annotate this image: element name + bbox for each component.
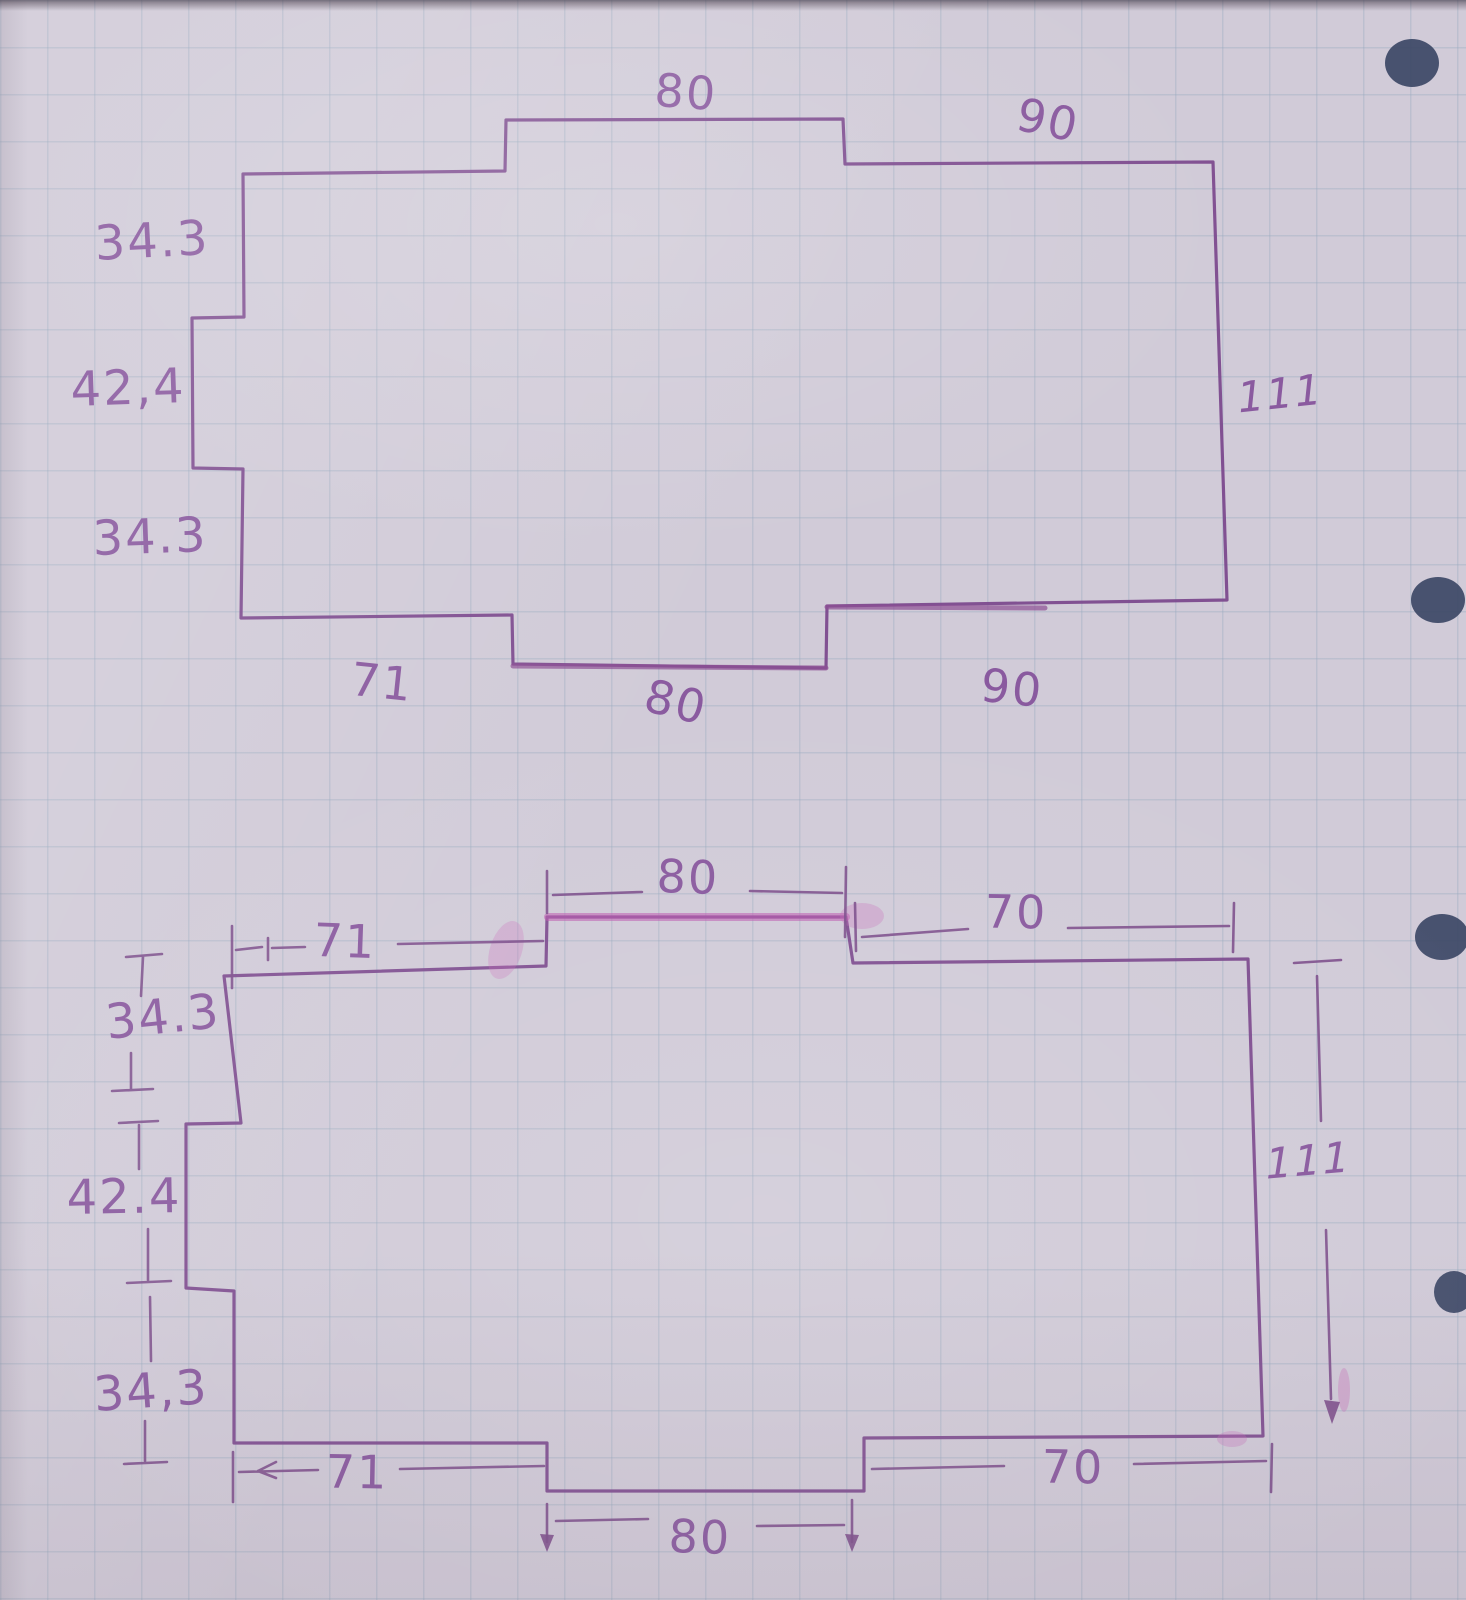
dim-label-bottom90: 90 (978, 662, 1045, 714)
dimension-lines (112, 867, 1341, 1542)
notebook-page: 80 90 34.3 42,4 34.3 71 80 90 111 80 71 … (0, 0, 1466, 1600)
dim-label-b-top71: 71 (313, 917, 377, 965)
dim-label-top80: 80 (653, 67, 719, 117)
hole-dot (1385, 39, 1439, 87)
dimension-arrowheads (540, 1400, 1340, 1552)
sketch-canvas (0, 0, 1466, 1600)
dim-label-b-top70: 70 (984, 888, 1047, 935)
dim-label-left-42: 42,4 (70, 362, 186, 414)
dim-label-b-bottom80: 80 (668, 1513, 732, 1561)
dim-label-b-top80: 80 (656, 853, 720, 901)
dim-label-b-left-34-lower: 34,3 (92, 1363, 210, 1419)
dim-label-left-34-upper: 34.3 (93, 214, 210, 268)
hole-dot (1415, 914, 1466, 960)
dim-label-top90: 90 (1013, 91, 1084, 149)
ink-smudge (482, 917, 531, 984)
dim-label-bottom71: 71 (348, 656, 415, 708)
top-shape-outline (192, 119, 1227, 668)
hole-dot (1411, 577, 1465, 623)
binder-hole-dots (1385, 39, 1466, 1313)
dim-label-b-bottom70: 70 (1041, 1443, 1104, 1490)
dim-label-bottom80: 80 (640, 672, 712, 732)
dim-label-b-left-34-upper: 34.3 (103, 987, 222, 1047)
dim-label-b-bottom71: 71 (325, 1448, 388, 1495)
hole-dot (1434, 1271, 1466, 1313)
dim-label-left-34-lower: 34.3 (92, 511, 208, 563)
top-shape-overdraw (513, 607, 1045, 668)
dim-label-right111: 111 (1235, 368, 1325, 420)
dim-label-b-left-42: 42.4 (66, 1172, 182, 1222)
ink-smudge (1338, 1368, 1350, 1412)
ink-smudge (1217, 1431, 1247, 1447)
dim-label-b-right111: 111 (1262, 1136, 1355, 1186)
bottom-shape-outline (186, 917, 1263, 1491)
